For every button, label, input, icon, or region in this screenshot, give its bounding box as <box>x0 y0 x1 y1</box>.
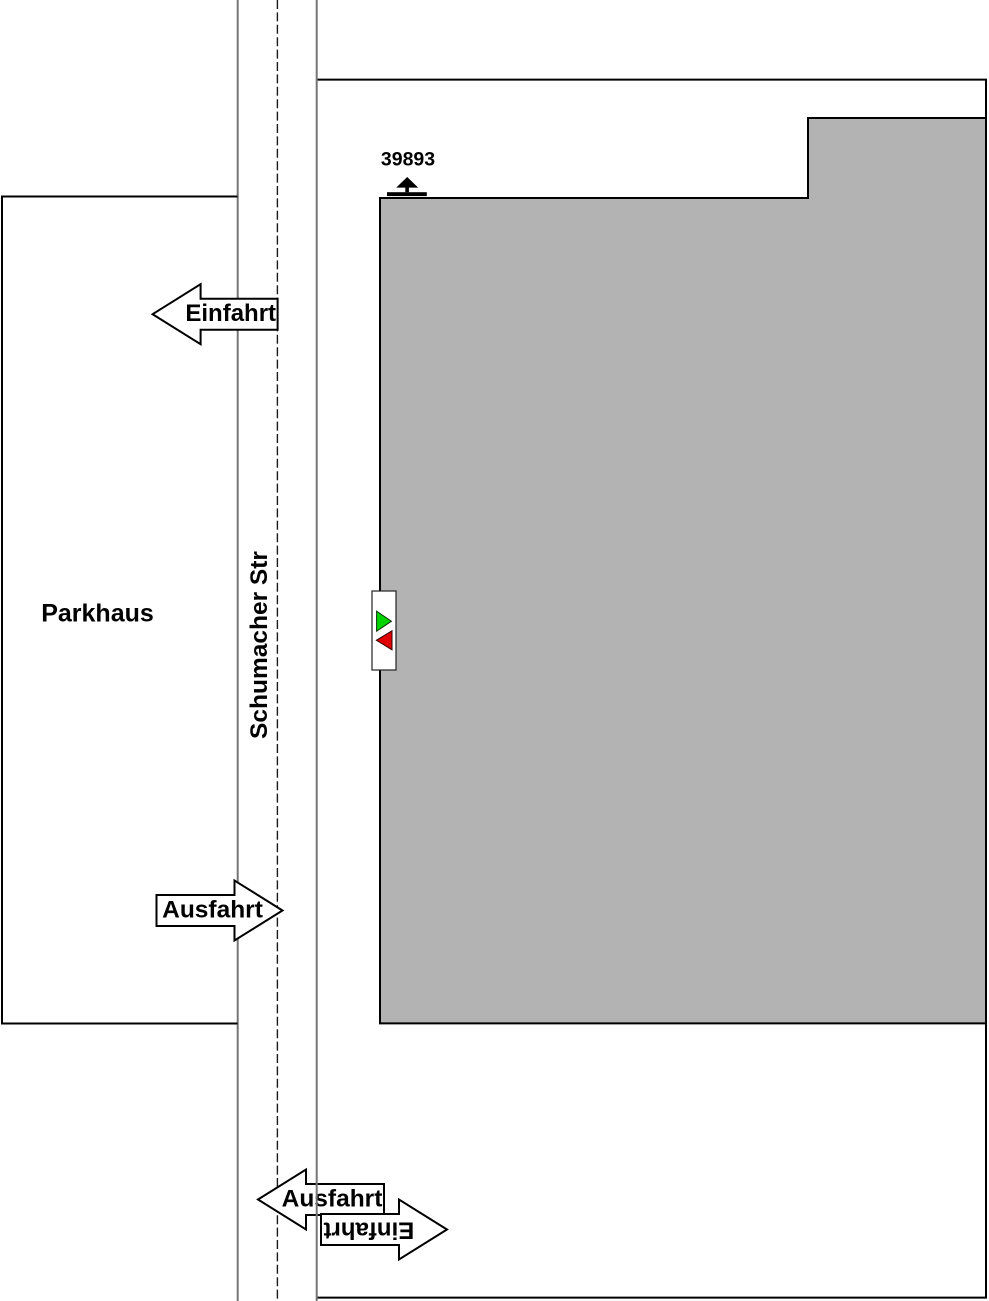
svg-text:Ausfahrt: Ausfahrt <box>162 896 263 923</box>
svg-text:Schumacher Str: Schumacher Str <box>246 551 273 739</box>
svg-text:Parkhaus: Parkhaus <box>41 600 154 628</box>
svg-text:Ausfahrt: Ausfahrt <box>282 1185 383 1212</box>
svg-text:Einfahrt: Einfahrt <box>324 1217 415 1244</box>
svg-text:39893: 39893 <box>381 149 435 171</box>
svg-text:Einfahrt: Einfahrt <box>185 300 276 327</box>
